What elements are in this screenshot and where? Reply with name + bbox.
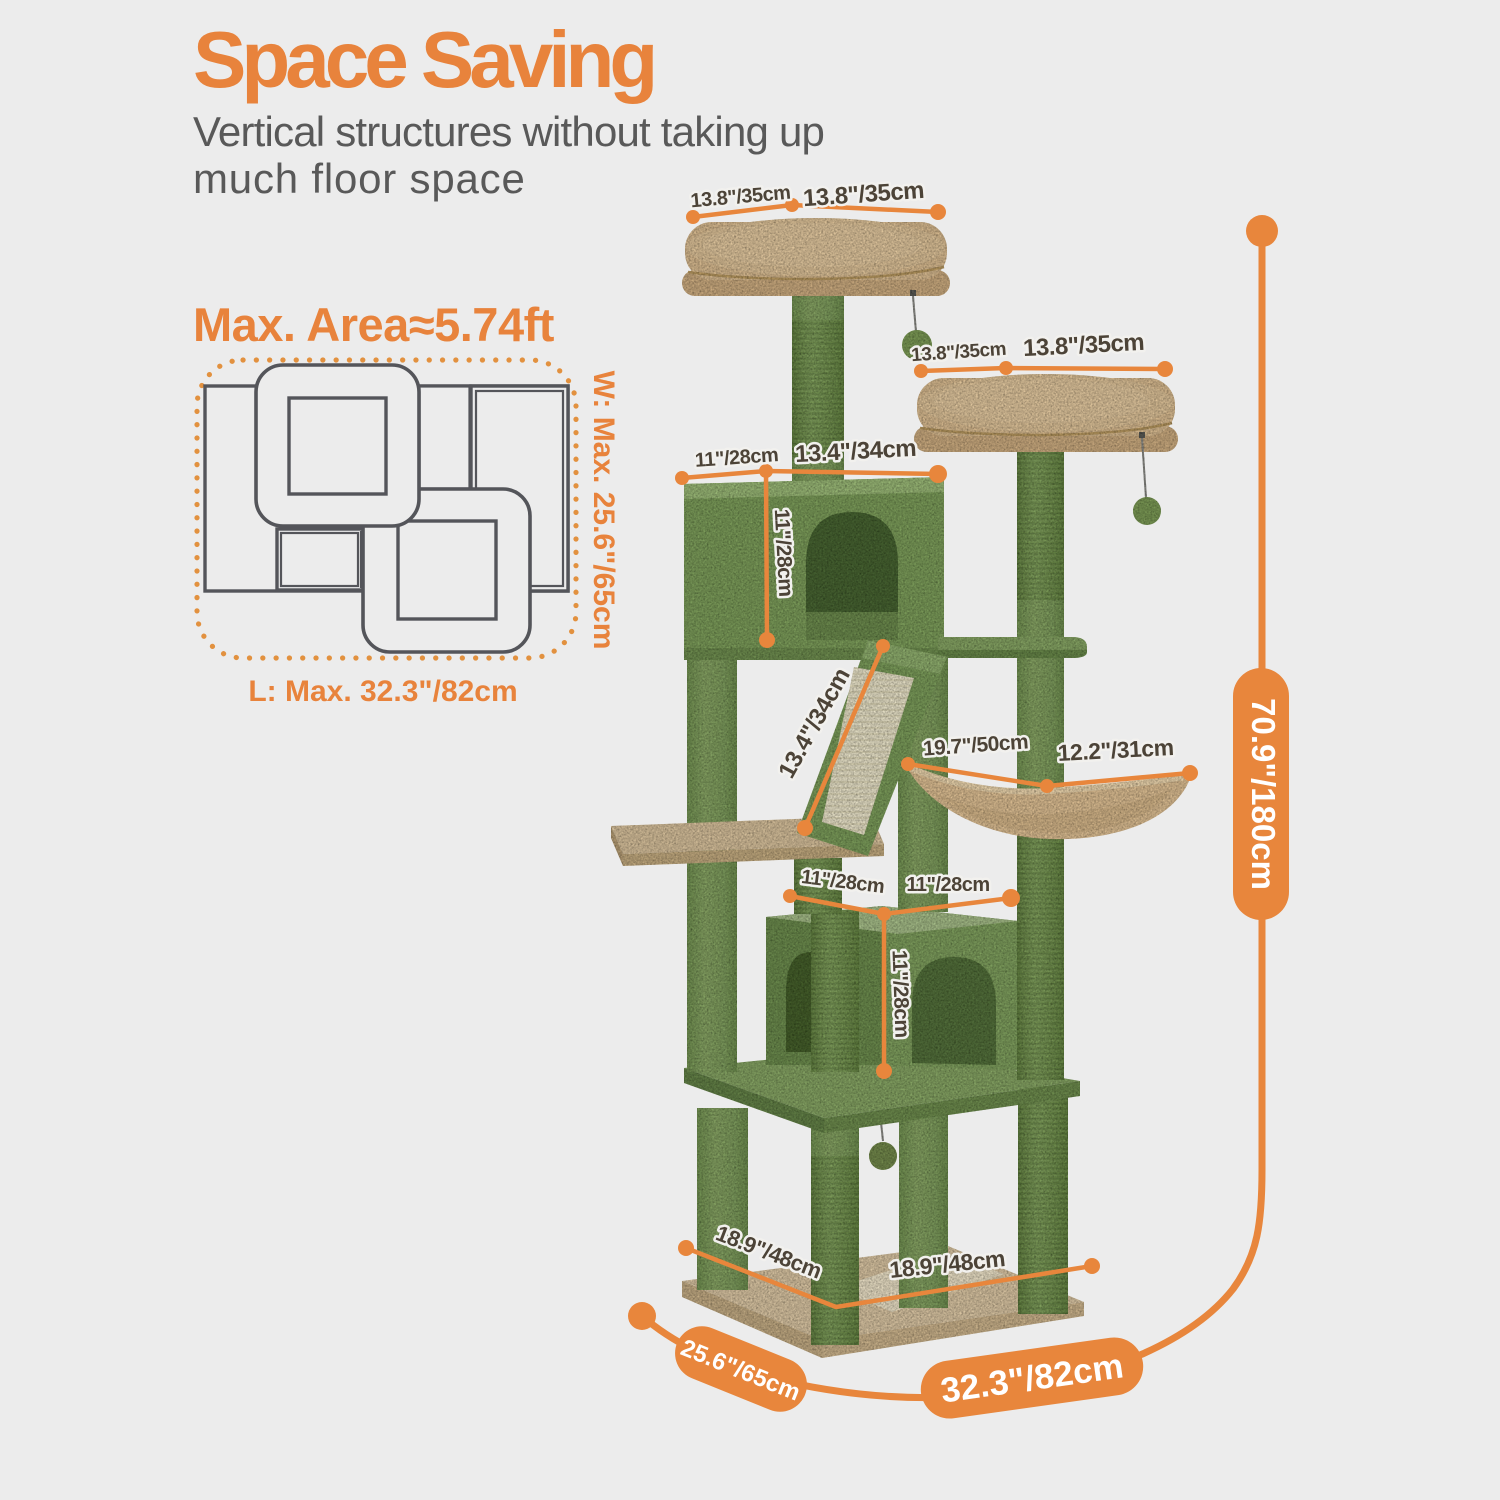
svg-text:11"/28cm: 11"/28cm xyxy=(887,950,913,1038)
svg-text:70.9"/180cm: 70.9"/180cm xyxy=(1245,698,1282,890)
svg-text:much floor space: much floor space xyxy=(193,155,526,202)
svg-text:Space Saving: Space Saving xyxy=(193,15,653,104)
svg-text:L: Max. 32.3"/82cm: L: Max. 32.3"/82cm xyxy=(248,675,517,708)
svg-text:W: Max. 25.6"/65cm: W: Max. 25.6"/65cm xyxy=(587,371,620,650)
svg-text:11"/28cm: 11"/28cm xyxy=(906,874,989,896)
svg-text:Max. Area≈5.74ft: Max. Area≈5.74ft xyxy=(193,298,555,351)
svg-text:Vertical structures without ta: Vertical structures without taking up xyxy=(193,108,824,155)
svg-text:11"/28cm: 11"/28cm xyxy=(770,508,798,597)
